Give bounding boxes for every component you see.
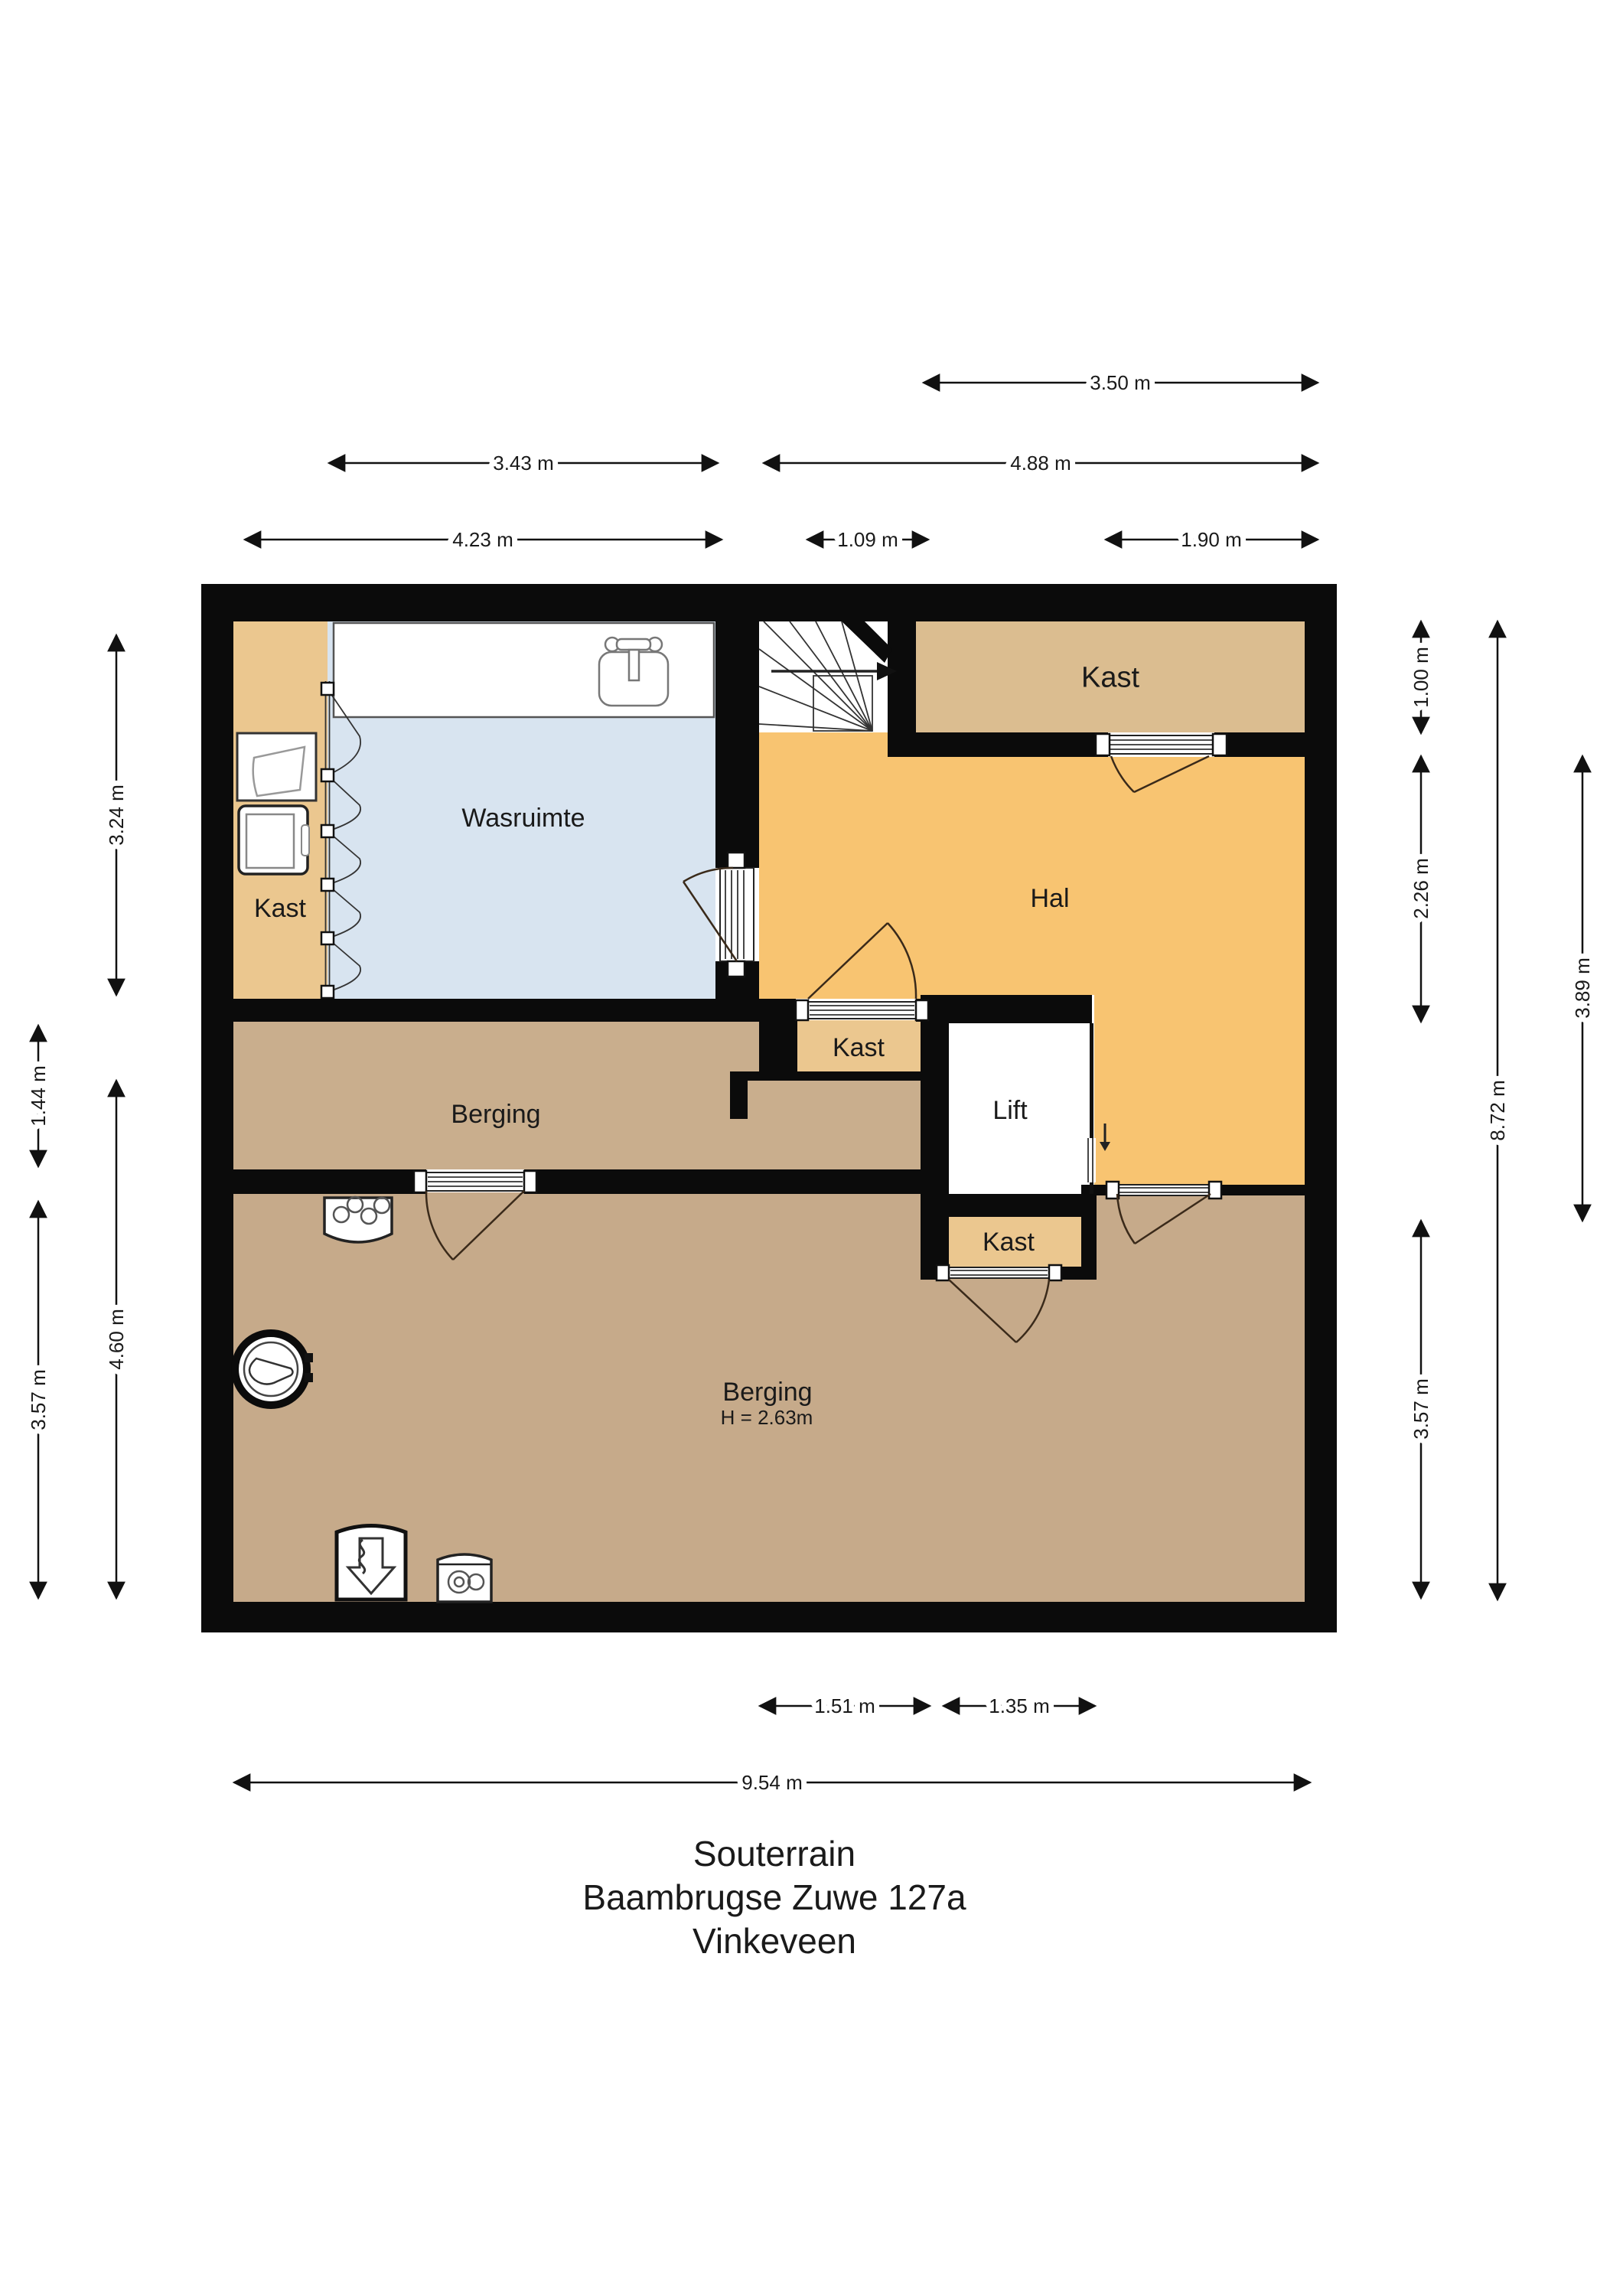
dim-label: 1.00 m: [1410, 647, 1432, 708]
wall-outer-right: [1305, 584, 1337, 1632]
label-berging-lower: Berging: [722, 1378, 812, 1407]
laundry-tub-icon: [237, 733, 316, 801]
dim-label: 1.51 m: [814, 1694, 875, 1717]
dim-label: 4.60 m: [105, 1309, 128, 1370]
dim-label: 3.24 m: [105, 784, 128, 846]
title-city: Vinkeveen: [693, 1921, 856, 1961]
wall-halberging-right: [1211, 1185, 1306, 1195]
label-berging-upper: Berging: [451, 1100, 540, 1129]
label-berging-height: H = 2.63m: [721, 1406, 813, 1429]
dim-label: 1.44 m: [27, 1065, 50, 1127]
wall-lift-top: [921, 995, 1092, 1023]
label-kast-below-lift: Kast: [983, 1228, 1035, 1257]
dim-label: 3.50 m: [1090, 371, 1151, 394]
wall-midkast-bottom: [738, 1071, 949, 1081]
title-address: Baambrugse Zuwe 127a: [582, 1877, 966, 1917]
wall-wasruimte-bottom: [201, 999, 796, 1022]
wall-outer-bottom: [201, 1602, 1337, 1632]
dim-label: 9.54 m: [741, 1771, 803, 1794]
wall-outer-left: [201, 584, 233, 1632]
wall-kasttop-bottom-left: [916, 732, 1108, 757]
washing-machine-door: [246, 814, 294, 868]
label-lift: Lift: [992, 1096, 1028, 1125]
dim-label: 4.88 m: [1010, 452, 1071, 475]
wall-lift-left: [921, 999, 949, 1280]
floorplan-canvas: Wasruimte Kast Kast Hal Kast Lift Kast B…: [0, 0, 1623, 2296]
dim-label: 2.26 m: [1410, 858, 1432, 919]
wall-outer-top: [201, 584, 1337, 621]
wall-lift-bottom: [921, 1194, 1097, 1217]
dim-label: 3.89 m: [1571, 957, 1594, 1019]
boiler-tab-bottom: [305, 1373, 313, 1382]
room-fills: [233, 621, 1305, 1602]
dim-label: 1.90 m: [1181, 528, 1242, 551]
title-block: Souterrain Baambrugse Zuwe 127a Vinkevee…: [582, 1834, 966, 1961]
wall-midkast-left: [759, 1014, 797, 1081]
mechanical-ventilation-icon: [337, 1526, 406, 1600]
dim-label: 3.57 m: [1410, 1378, 1432, 1440]
floorplan-page: Wasruimte Kast Kast Hal Kast Lift Kast B…: [0, 0, 1623, 2296]
wall-kasttop-bottom-right: [1214, 732, 1305, 757]
label-kast-top: Kast: [1081, 661, 1139, 693]
washing-machine-latch: [301, 825, 309, 856]
dim-label: 1.35 m: [989, 1694, 1050, 1717]
dim-label: 3.57 m: [27, 1369, 50, 1430]
wall-wasruimte-right-upper: [715, 621, 759, 868]
label-kast-left: Kast: [254, 894, 307, 923]
dim-label: 1.09 m: [837, 528, 898, 551]
label-hal: Hal: [1030, 884, 1069, 913]
boiler-tab-top: [305, 1353, 313, 1362]
title-floor: Souterrain: [693, 1834, 855, 1874]
wall-kastbelow-right: [1081, 1185, 1097, 1280]
dim-label: 4.23 m: [452, 528, 513, 551]
label-wasruimte: Wasruimte: [461, 804, 585, 833]
dim-label: 3.43 m: [493, 452, 554, 475]
wall-divider-left: [201, 1169, 426, 1194]
wall-divider-right: [524, 1169, 949, 1194]
dim-label: 8.72 m: [1486, 1080, 1509, 1141]
label-kast-mid: Kast: [833, 1033, 885, 1062]
